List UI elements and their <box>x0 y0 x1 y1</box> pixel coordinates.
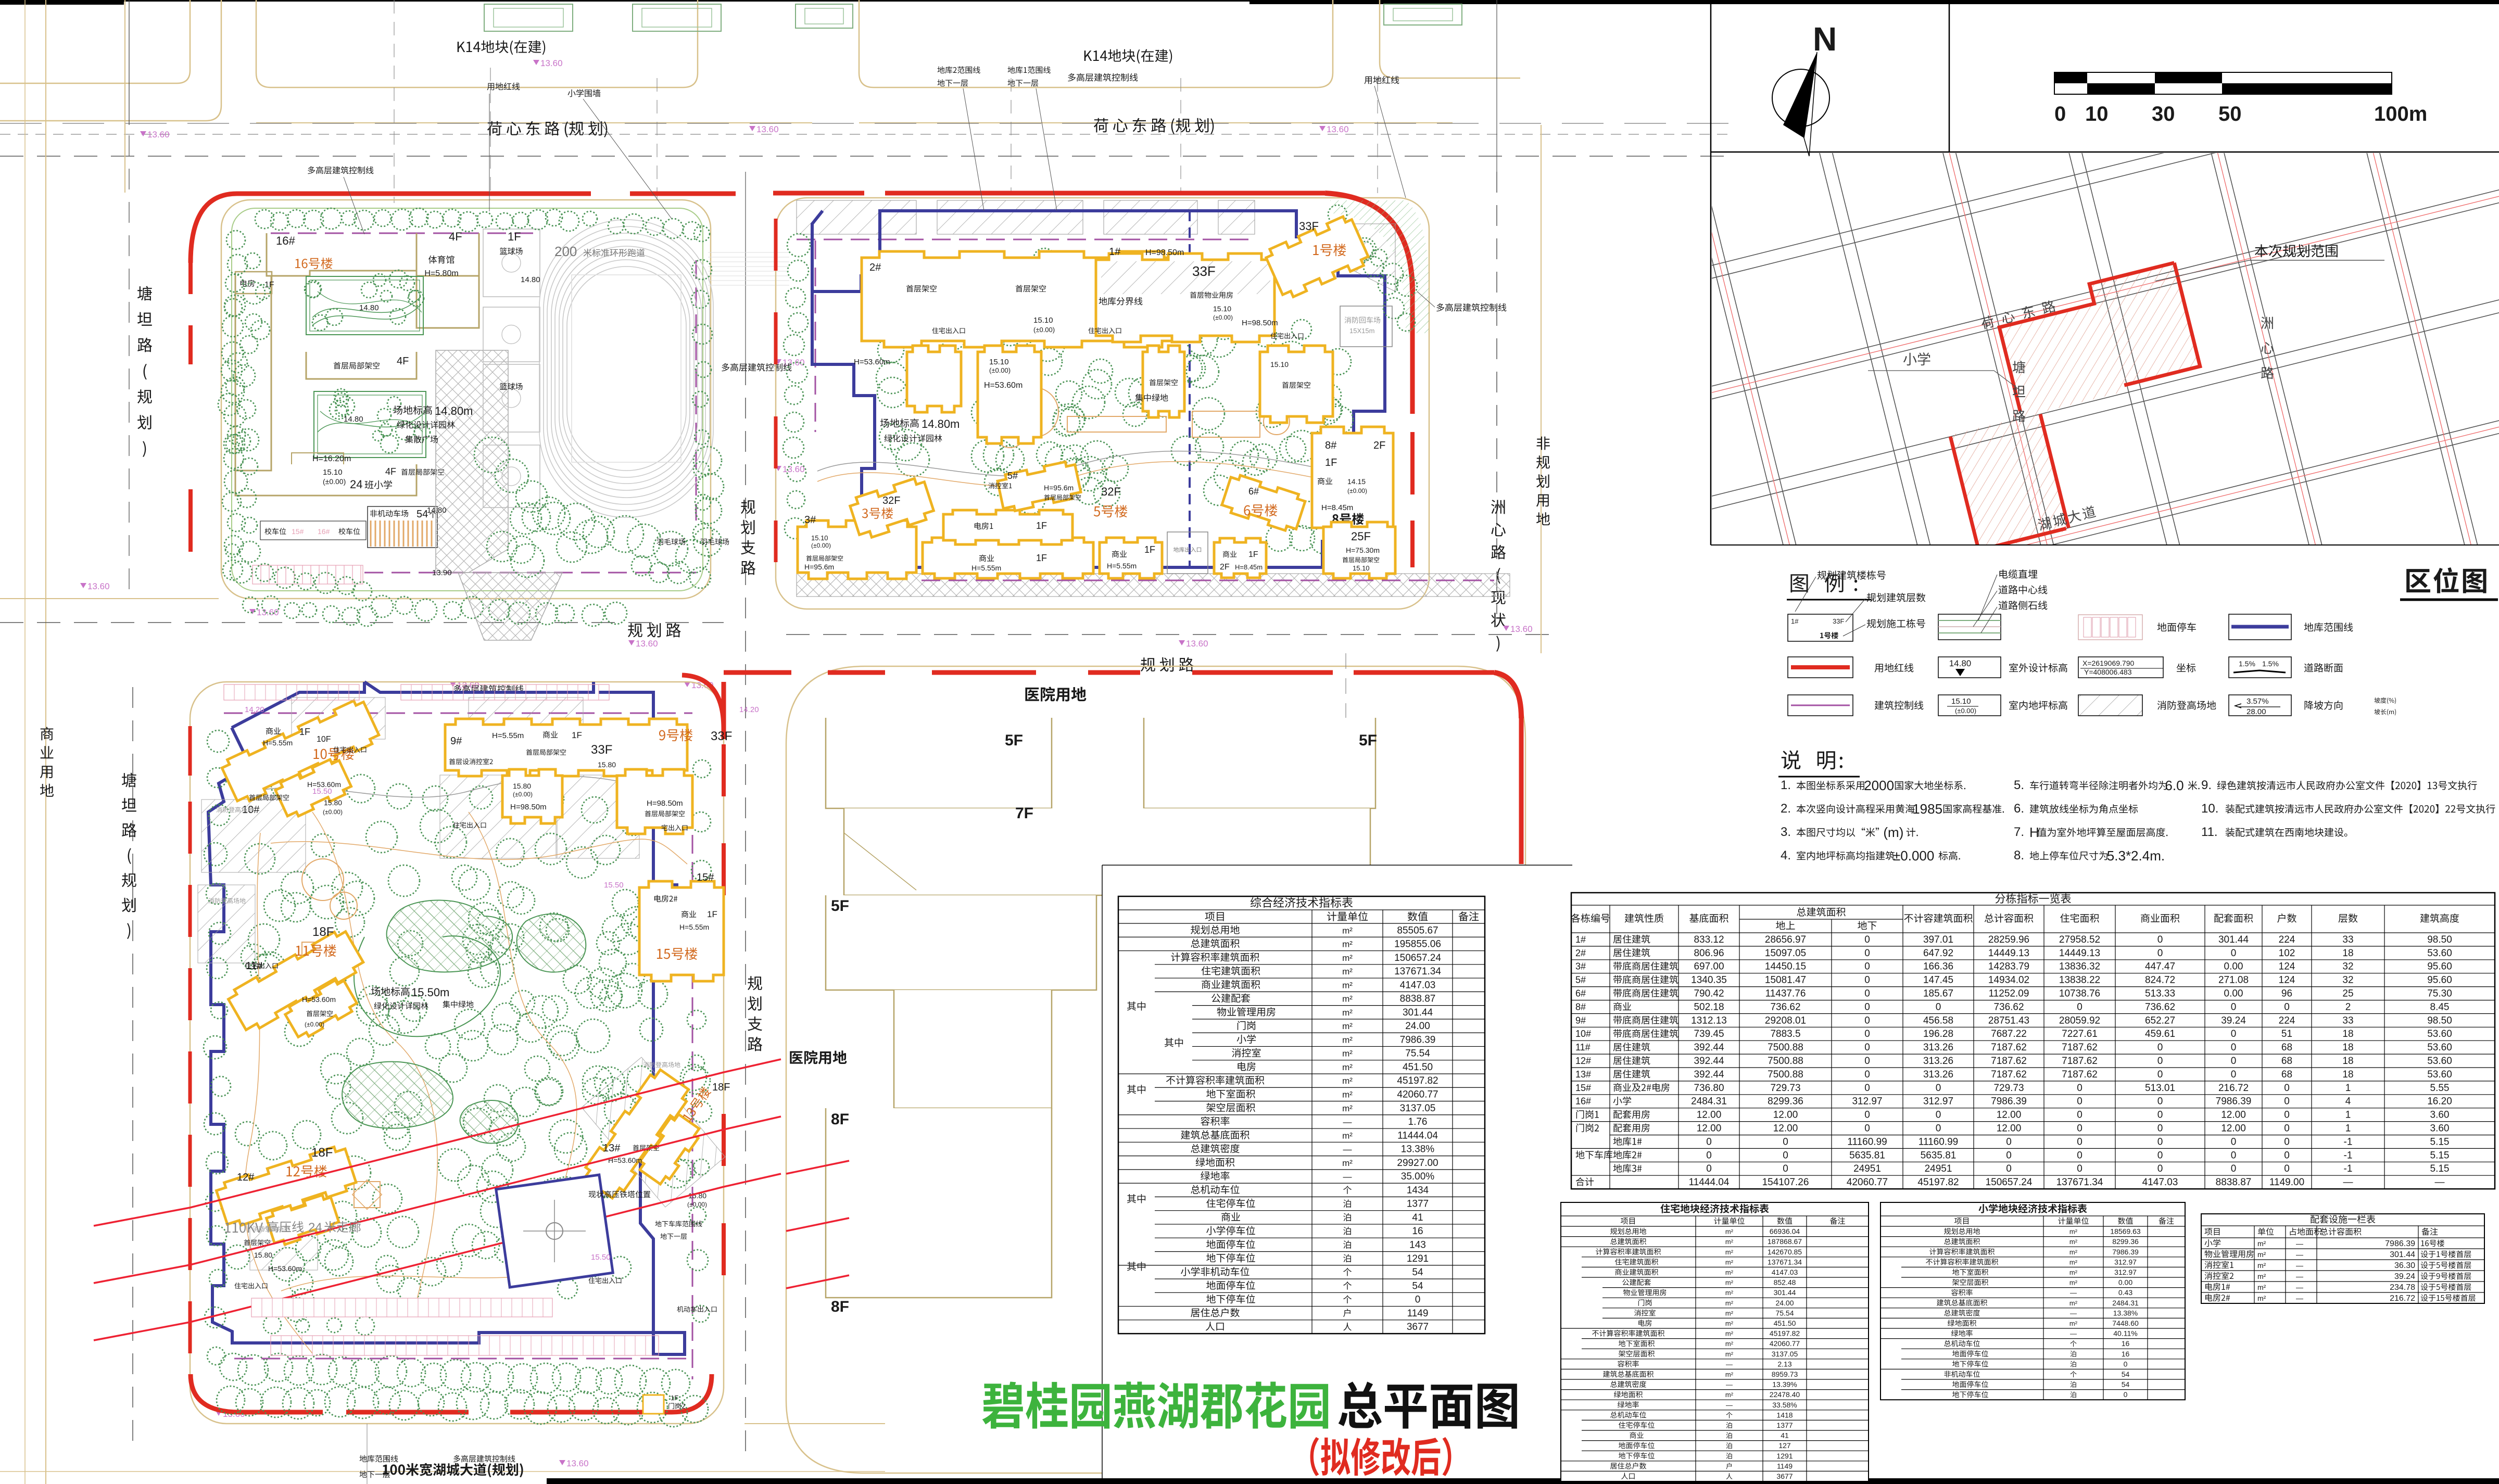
svg-text:1149: 1149 <box>1777 1462 1793 1470</box>
svg-text:0: 0 <box>1864 961 1870 972</box>
svg-text:513.01: 513.01 <box>2145 1083 2175 1094</box>
svg-text:0: 0 <box>2284 1001 2290 1012</box>
svg-text:29208.01: 29208.01 <box>1765 1015 1806 1026</box>
svg-text:1377: 1377 <box>1776 1421 1793 1429</box>
svg-text:736.62: 736.62 <box>1993 1001 2024 1012</box>
svg-text:m²: m² <box>1342 967 1353 976</box>
svg-text:—: — <box>1343 1117 1352 1127</box>
svg-text:m²: m² <box>1342 1062 1353 1072</box>
svg-text:11#: 11# <box>1575 1042 1591 1052</box>
svg-text:697.00: 697.00 <box>1694 961 1724 972</box>
svg-text:5.15: 5.15 <box>2430 1150 2450 1161</box>
svg-text:5F: 5F <box>831 897 849 915</box>
svg-text:(±0.00): (±0.00) <box>323 477 346 486</box>
svg-text:451.50: 451.50 <box>1403 1062 1433 1073</box>
svg-text:68: 68 <box>2281 1056 2292 1067</box>
svg-text:0: 0 <box>1864 1123 1870 1134</box>
svg-text:32F: 32F <box>1101 485 1121 498</box>
svg-text:—: — <box>2070 1289 2077 1297</box>
svg-text:224: 224 <box>2279 1015 2295 1026</box>
svg-text:m²: m² <box>1725 1371 1734 1378</box>
svg-text:1.76: 1.76 <box>1408 1117 1428 1127</box>
svg-text:8838.87: 8838.87 <box>1400 994 1436 1005</box>
svg-text:33F: 33F <box>1833 617 1844 625</box>
svg-text:142670.85: 142670.85 <box>1768 1248 1802 1256</box>
svg-text:(±0.00): (±0.00) <box>305 1021 324 1028</box>
svg-text:5635.81: 5635.81 <box>1921 1150 1957 1161</box>
svg-text:16#: 16# <box>318 527 330 536</box>
svg-text:0: 0 <box>2231 1029 2237 1039</box>
svg-text:7883.5: 7883.5 <box>1770 1029 1800 1039</box>
svg-text:18: 18 <box>2342 948 2353 959</box>
svg-text:127: 127 <box>1778 1441 1791 1450</box>
svg-text:—: — <box>1726 1401 1733 1409</box>
svg-text:15.10: 15.10 <box>1213 305 1231 313</box>
svg-text:m²: m² <box>2257 1272 2266 1280</box>
svg-text:8959.73: 8959.73 <box>1772 1370 1798 1378</box>
svg-text:0: 0 <box>2157 1110 2163 1121</box>
svg-text:H=75.30m: H=75.30m <box>1346 546 1380 554</box>
svg-text:0: 0 <box>2077 1001 2082 1012</box>
svg-text:29927.00: 29927.00 <box>1397 1158 1438 1169</box>
svg-text:0: 0 <box>2077 1110 2082 1121</box>
svg-text:1.5%: 1.5% <box>2262 659 2279 668</box>
svg-text:301.44: 301.44 <box>1774 1288 1796 1297</box>
svg-text:m²: m² <box>1725 1248 1734 1256</box>
svg-text:137671.34: 137671.34 <box>1768 1258 1802 1266</box>
svg-text:4F: 4F <box>397 356 409 367</box>
svg-text:7986.39: 7986.39 <box>2385 1239 2415 1248</box>
svg-text:3.60: 3.60 <box>2430 1110 2450 1121</box>
svg-text:H=5.55m: H=5.55m <box>971 564 1001 572</box>
svg-text:0: 0 <box>2157 1136 2163 1147</box>
svg-text:301.44: 301.44 <box>1403 1007 1433 1018</box>
svg-text:1: 1 <box>2345 1110 2351 1121</box>
svg-text:28059.92: 28059.92 <box>2059 1015 2100 1026</box>
svg-text:14.80m: 14.80m <box>922 417 960 430</box>
svg-text:m²: m² <box>1342 1104 1353 1113</box>
svg-text:13.60: 13.60 <box>257 607 279 617</box>
svg-text:28.00: 28.00 <box>2246 707 2266 716</box>
svg-text:1418: 1418 <box>1776 1411 1793 1419</box>
svg-text:15.10: 15.10 <box>989 358 1009 366</box>
svg-text:m²: m² <box>1725 1340 1734 1348</box>
svg-text:1149.00: 1149.00 <box>2269 1177 2304 1188</box>
svg-text:312.97: 312.97 <box>2114 1258 2137 1266</box>
svg-text:0: 0 <box>1936 1110 1941 1121</box>
svg-text:15.10: 15.10 <box>1270 360 1289 369</box>
svg-text:32: 32 <box>2342 961 2353 972</box>
svg-text:98.50: 98.50 <box>2427 1015 2452 1026</box>
svg-text:—: — <box>2296 1250 2303 1259</box>
svg-text:m²: m² <box>1725 1238 1734 1246</box>
svg-text:m²: m² <box>1725 1289 1734 1297</box>
svg-text:5.: 5. <box>2014 778 2024 792</box>
svg-text:2484.31: 2484.31 <box>2112 1299 2139 1307</box>
svg-text:53.60: 53.60 <box>2427 1029 2452 1039</box>
svg-text:15.10: 15.10 <box>323 468 343 477</box>
svg-text:729.73: 729.73 <box>1993 1083 2024 1094</box>
svg-text:H=8.45m: H=8.45m <box>1321 503 1353 512</box>
svg-text:54: 54 <box>1412 1280 1423 1291</box>
svg-text:513.33: 513.33 <box>2145 988 2175 999</box>
svg-text:166.36: 166.36 <box>1923 961 1953 972</box>
svg-text:36.30: 36.30 <box>2394 1261 2415 1270</box>
svg-text:313.26: 313.26 <box>1923 1056 1953 1067</box>
svg-text:102: 102 <box>2279 948 2295 959</box>
svg-text:7187.62: 7187.62 <box>2062 1069 2098 1080</box>
svg-text:0: 0 <box>1936 1083 1941 1094</box>
svg-text:0: 0 <box>2284 1136 2290 1147</box>
svg-text:10: 10 <box>2085 103 2109 125</box>
svg-text:m²: m² <box>1725 1391 1734 1399</box>
svg-text:7986.39: 7986.39 <box>1991 1096 2027 1107</box>
svg-text:0: 0 <box>2231 1001 2237 1012</box>
svg-text:H=98.50m: H=98.50m <box>647 799 683 808</box>
svg-text:14283.79: 14283.79 <box>1988 961 2029 972</box>
svg-text:13.38%: 13.38% <box>2113 1309 2138 1317</box>
svg-text:13#: 13# <box>1575 1069 1591 1080</box>
svg-text:15.80: 15.80 <box>598 760 616 769</box>
svg-text:13.60: 13.60 <box>1186 639 1208 649</box>
svg-text:41: 41 <box>1781 1431 1789 1440</box>
svg-text:95.60: 95.60 <box>2427 975 2452 986</box>
svg-text:24: 24 <box>350 478 362 491</box>
svg-text:0: 0 <box>1706 1163 1712 1174</box>
svg-text:54: 54 <box>2122 1370 2130 1378</box>
svg-text:28259.96: 28259.96 <box>1988 934 2029 945</box>
svg-text:3.60: 3.60 <box>2430 1123 2450 1134</box>
svg-text:7227.61: 7227.61 <box>2062 1029 2098 1039</box>
svg-text:7187.62: 7187.62 <box>1991 1042 2027 1053</box>
svg-text:m²: m² <box>1725 1299 1734 1307</box>
svg-text:0: 0 <box>1936 1001 1941 1012</box>
svg-text:m²: m² <box>2257 1294 2266 1302</box>
svg-text:301.44: 301.44 <box>2218 934 2249 945</box>
svg-text:1#: 1# <box>1575 934 1586 945</box>
svg-text:3137.05: 3137.05 <box>1400 1103 1436 1114</box>
svg-text:0: 0 <box>2284 1083 2290 1094</box>
svg-text:51: 51 <box>2281 1029 2292 1039</box>
svg-text:1F: 1F <box>1144 544 1155 555</box>
svg-text:5.55: 5.55 <box>2430 1083 2450 1094</box>
svg-text:10#: 10# <box>1575 1029 1591 1039</box>
svg-text:0: 0 <box>2231 1163 2237 1174</box>
svg-text:—: — <box>1726 1381 1733 1389</box>
svg-text:2: 2 <box>2345 1001 2351 1012</box>
svg-text:54: 54 <box>2122 1380 2130 1389</box>
svg-text:736.62: 736.62 <box>2145 1001 2175 1012</box>
svg-text:33: 33 <box>2342 934 2353 945</box>
svg-text:647.92: 647.92 <box>1923 948 1953 959</box>
svg-text:143: 143 <box>1409 1239 1426 1250</box>
svg-text:7500.88: 7500.88 <box>1768 1056 1803 1067</box>
svg-text:15#: 15# <box>1575 1083 1591 1093</box>
svg-text:5F: 5F <box>1005 732 1023 749</box>
svg-text:0: 0 <box>2157 1056 2163 1067</box>
svg-text:(±0.00): (±0.00) <box>1347 487 1367 494</box>
svg-text:m²: m² <box>1725 1350 1734 1358</box>
svg-text:312.97: 312.97 <box>1852 1096 1882 1107</box>
svg-text:0: 0 <box>1864 1042 1870 1053</box>
svg-text:0.00: 0.00 <box>2224 988 2243 999</box>
svg-text:m²: m² <box>1342 1035 1353 1045</box>
svg-text:H=5.55m: H=5.55m <box>263 739 293 747</box>
svg-text:-1: -1 <box>2344 1136 2353 1147</box>
svg-text:14.80: 14.80 <box>344 415 363 424</box>
svg-text:85505.67: 85505.67 <box>1397 925 1438 936</box>
svg-text:392.44: 392.44 <box>1694 1042 1724 1053</box>
svg-text:806.96: 806.96 <box>1694 948 1724 959</box>
svg-text:m²: m² <box>1725 1269 1734 1276</box>
svg-text:7986.39: 7986.39 <box>2112 1248 2139 1256</box>
svg-text:0: 0 <box>2077 1163 2082 1174</box>
svg-text:1149: 1149 <box>1407 1308 1429 1319</box>
svg-text:124: 124 <box>2279 961 2295 972</box>
svg-text:13.60: 13.60 <box>87 581 110 591</box>
svg-text:H=53.60m: H=53.60m <box>984 381 1023 390</box>
svg-text:24: 24 <box>308 1221 322 1235</box>
svg-text:0: 0 <box>2157 1163 2163 1174</box>
svg-text:24951: 24951 <box>1853 1163 1881 1174</box>
svg-text:187868.67: 187868.67 <box>1768 1237 1802 1246</box>
svg-text:1F: 1F <box>1248 550 1258 559</box>
svg-text:195855.06: 195855.06 <box>1394 939 1441 950</box>
svg-text:1F: 1F <box>572 730 582 740</box>
svg-text:0.43: 0.43 <box>2118 1288 2132 1297</box>
svg-text:0: 0 <box>1936 1123 1941 1134</box>
svg-text:0: 0 <box>1864 1069 1870 1080</box>
svg-text:±0.000: ±0.000 <box>1893 848 1934 864</box>
svg-text:5#: 5# <box>1575 975 1586 985</box>
svg-text:15.50: 15.50 <box>591 1253 611 1262</box>
svg-text:-1: -1 <box>2344 1163 2353 1174</box>
svg-text:8#: 8# <box>1575 1001 1586 1012</box>
svg-text:4F: 4F <box>449 230 462 243</box>
svg-text:15081.47: 15081.47 <box>1765 975 1806 986</box>
svg-text:12#: 12# <box>1575 1056 1591 1066</box>
svg-text:Y=408006.483: Y=408006.483 <box>2084 668 2132 676</box>
svg-text:10738.76: 10738.76 <box>2059 988 2100 999</box>
svg-text:185.67: 185.67 <box>1923 988 1953 999</box>
svg-text:12.00: 12.00 <box>1773 1123 1798 1134</box>
svg-text:459.61: 459.61 <box>2145 1029 2175 1039</box>
svg-text:28751.43: 28751.43 <box>1988 1015 2029 1026</box>
svg-text:10F: 10F <box>317 735 331 744</box>
svg-text:0: 0 <box>2006 1136 2012 1147</box>
svg-text:m²: m² <box>1342 1090 1353 1100</box>
svg-text:6#: 6# <box>1575 988 1586 999</box>
svg-text:X=2619069.790: X=2619069.790 <box>2082 659 2134 667</box>
svg-text:16#: 16# <box>276 234 295 247</box>
svg-text:0: 0 <box>2284 1163 2290 1174</box>
svg-text:H=95.6m: H=95.6m <box>804 563 834 571</box>
svg-text:m²: m² <box>1725 1258 1734 1266</box>
svg-text:42060.77: 42060.77 <box>1770 1339 1800 1348</box>
svg-text:15.80: 15.80 <box>254 1251 272 1259</box>
svg-text:3137.05: 3137.05 <box>1772 1350 1798 1358</box>
svg-text:0: 0 <box>1864 1029 1870 1039</box>
svg-text:1985: 1985 <box>1912 801 1942 817</box>
svg-text:7448.60: 7448.60 <box>2112 1319 2139 1327</box>
svg-text:736.80: 736.80 <box>1694 1083 1724 1094</box>
svg-text:68: 68 <box>2281 1069 2292 1080</box>
svg-text:3#: 3# <box>1575 961 1586 972</box>
svg-text:33F: 33F <box>1299 220 1319 233</box>
svg-text:0: 0 <box>1706 1136 1712 1147</box>
svg-text:m²: m² <box>2069 1269 2078 1276</box>
svg-text:53.60: 53.60 <box>2427 948 2452 959</box>
svg-text:3.: 3. <box>1781 825 1791 839</box>
svg-text:33F: 33F <box>1192 263 1216 279</box>
svg-text:75.54: 75.54 <box>1775 1309 1794 1317</box>
svg-text:5.15: 5.15 <box>2430 1163 2450 1174</box>
svg-text:33.58%: 33.58% <box>1772 1401 1797 1409</box>
svg-text:12#: 12# <box>237 1172 255 1183</box>
svg-text:32: 32 <box>2342 975 2353 986</box>
svg-text:m²: m² <box>1342 953 1353 963</box>
svg-text:8.: 8. <box>2014 848 2024 863</box>
svg-text:H=98.50m: H=98.50m <box>1242 319 1278 327</box>
svg-text:2.: 2. <box>1781 802 1791 816</box>
svg-text:8F: 8F <box>831 1111 849 1128</box>
svg-text:0: 0 <box>2284 1150 2290 1161</box>
svg-text:7187.62: 7187.62 <box>2062 1056 2098 1067</box>
svg-text:39.24: 39.24 <box>2221 1015 2246 1026</box>
svg-text:15.10: 15.10 <box>1951 697 1971 706</box>
svg-text:54: 54 <box>1412 1267 1423 1278</box>
svg-text:(±0.00): (±0.00) <box>1033 326 1055 334</box>
svg-text:7687.22: 7687.22 <box>1991 1029 2027 1039</box>
svg-text:42060.77: 42060.77 <box>1397 1089 1438 1100</box>
svg-text:16: 16 <box>2122 1339 2130 1348</box>
svg-text:1340.35: 1340.35 <box>1691 975 1727 986</box>
svg-text:0: 0 <box>2231 1150 2237 1161</box>
svg-text:11160.99: 11160.99 <box>1919 1136 1958 1147</box>
svg-text:0: 0 <box>2124 1360 2128 1368</box>
svg-text:216.72: 216.72 <box>2390 1294 2415 1303</box>
svg-text:15#: 15# <box>697 872 714 883</box>
svg-text:—: — <box>2343 1177 2353 1188</box>
svg-text:0: 0 <box>2231 1042 2237 1053</box>
svg-text:11252.09: 11252.09 <box>1989 988 2029 999</box>
svg-text:15.50: 15.50 <box>312 787 332 796</box>
svg-text:10.: 10. <box>2201 802 2218 816</box>
svg-text:3677: 3677 <box>1407 1322 1429 1333</box>
svg-text:11444.04: 11444.04 <box>1689 1177 1730 1188</box>
svg-text:(m): (m) <box>1883 825 1903 840</box>
svg-text:456.58: 456.58 <box>1923 1015 1953 1026</box>
svg-text:12.00: 12.00 <box>1997 1110 2022 1121</box>
svg-text:447.47: 447.47 <box>2145 961 2175 972</box>
svg-text:10#: 10# <box>242 804 260 816</box>
svg-text:25: 25 <box>2342 988 2353 999</box>
svg-text:124: 124 <box>2279 975 2295 986</box>
svg-text:0.00: 0.00 <box>2224 961 2243 972</box>
svg-text:12.00: 12.00 <box>2221 1110 2246 1121</box>
svg-text:15X15m: 15X15m <box>1349 327 1374 335</box>
svg-text:12.00: 12.00 <box>1697 1110 1722 1121</box>
svg-text:6#: 6# <box>1248 486 1259 497</box>
svg-text:0: 0 <box>2284 1110 2290 1121</box>
svg-text:0: 0 <box>2077 1083 2082 1094</box>
svg-text:196.28: 196.28 <box>1923 1029 1953 1039</box>
svg-text:14.15: 14.15 <box>1347 477 1366 486</box>
svg-text:200: 200 <box>554 244 577 259</box>
svg-text:—: — <box>2296 1239 2303 1248</box>
svg-text:15.80: 15.80 <box>513 782 531 790</box>
svg-text:312.97: 312.97 <box>2114 1268 2137 1276</box>
svg-text:0: 0 <box>1864 988 1870 999</box>
svg-text:1312.13: 1312.13 <box>1691 1015 1727 1026</box>
svg-text:13836.32: 13836.32 <box>2059 961 2100 972</box>
svg-text:392.44: 392.44 <box>1694 1056 1724 1067</box>
svg-text:14.80: 14.80 <box>521 275 540 284</box>
svg-text:H=5.80m: H=5.80m <box>424 269 458 278</box>
svg-text:45197.82: 45197.82 <box>1917 1177 1959 1188</box>
svg-text:m²: m² <box>1342 980 1353 990</box>
svg-text:7500.88: 7500.88 <box>1768 1042 1803 1053</box>
svg-text:0: 0 <box>2157 1150 2163 1161</box>
svg-text:0: 0 <box>2157 948 2163 959</box>
svg-text:5.15: 5.15 <box>2430 1136 2450 1147</box>
svg-text:7187.62: 7187.62 <box>1991 1069 2027 1080</box>
svg-text:0: 0 <box>1864 1056 1870 1067</box>
svg-text:32F: 32F <box>882 495 900 506</box>
svg-text:50: 50 <box>2218 103 2242 125</box>
svg-text:H=5.55m: H=5.55m <box>492 731 524 740</box>
svg-text:15.10: 15.10 <box>811 534 828 542</box>
svg-text:8299.36: 8299.36 <box>1768 1096 1803 1107</box>
svg-text:0: 0 <box>2077 1123 2082 1134</box>
svg-text:0.00: 0.00 <box>2118 1278 2132 1287</box>
svg-text:14.80: 14.80 <box>1949 658 1972 668</box>
svg-text:(±0.00): (±0.00) <box>989 366 1011 374</box>
svg-text:0: 0 <box>1864 1015 1870 1026</box>
svg-text:11.: 11. <box>2201 825 2218 839</box>
svg-text:14.80m: 14.80m <box>435 404 473 417</box>
svg-text:40.11%: 40.11% <box>2113 1329 2137 1338</box>
svg-text:0: 0 <box>1783 1150 1788 1161</box>
svg-text:13#: 13# <box>603 1143 621 1154</box>
svg-text:9.: 9. <box>2201 778 2212 792</box>
svg-text:8.45: 8.45 <box>2430 1001 2450 1012</box>
svg-text:0: 0 <box>1864 948 1870 959</box>
svg-text:42060.77: 42060.77 <box>1847 1177 1888 1188</box>
svg-text:0: 0 <box>1864 1001 1870 1012</box>
svg-text:16: 16 <box>2122 1350 2130 1358</box>
svg-text:m²: m² <box>2069 1248 2078 1256</box>
svg-text:0: 0 <box>2157 1123 2163 1134</box>
svg-text:1F: 1F <box>707 909 717 919</box>
svg-text:53.60: 53.60 <box>2427 1042 2452 1053</box>
svg-text:739.45: 739.45 <box>1694 1029 1724 1039</box>
svg-text:m²: m² <box>1342 940 1353 949</box>
svg-text:0: 0 <box>2077 1150 2082 1161</box>
svg-text:75.30: 75.30 <box>2427 988 2452 999</box>
svg-text:m²: m² <box>2069 1258 2078 1266</box>
svg-text:0: 0 <box>2077 1136 2082 1147</box>
svg-text:m²: m² <box>1342 1076 1353 1086</box>
svg-text:6.0: 6.0 <box>2165 778 2184 793</box>
svg-text:13.60: 13.60 <box>782 464 805 474</box>
svg-text:312.97: 312.97 <box>1923 1096 1953 1107</box>
svg-text:75.54: 75.54 <box>1405 1048 1430 1059</box>
svg-text:m²: m² <box>2257 1239 2266 1248</box>
svg-text:736.62: 736.62 <box>1770 1001 1800 1012</box>
svg-text:0: 0 <box>2157 1042 2163 1053</box>
svg-text:4.: 4. <box>1781 848 1791 863</box>
